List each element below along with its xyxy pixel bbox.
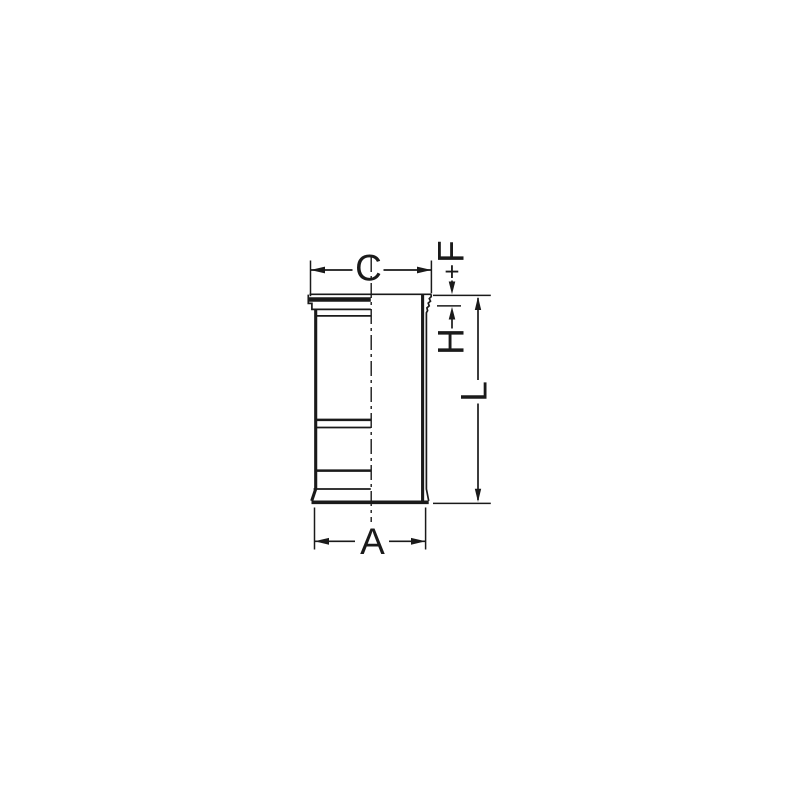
dim-h-label: H [430, 328, 471, 355]
dimension-l: L [433, 297, 494, 504]
liner-left-edge [312, 309, 316, 501]
dim-c-label: C [355, 248, 382, 289]
dim-c-arrow-right-icon [417, 267, 431, 274]
dim-l-arrow-down-icon [475, 489, 481, 502]
drawing-canvas: C F + H L [0, 0, 800, 800]
dimension-h: H [430, 306, 471, 355]
dim-a-label: A [360, 521, 385, 562]
dim-a-arrow-right-icon [411, 538, 426, 545]
dim-l-arrow-up-icon [475, 297, 481, 310]
liner-right-edge-serrated [426, 294, 431, 501]
liner-collar-left-step [308, 295, 371, 310]
liner-outline [308, 294, 431, 502]
dim-f-arrow-down-icon [449, 282, 456, 295]
dim-c-arrow-left-icon [311, 267, 326, 274]
dimension-f: F + [431, 240, 491, 295]
dim-a-arrow-left-icon [315, 538, 330, 545]
dimension-a: A [315, 508, 426, 563]
dim-l-label: L [453, 381, 494, 402]
cylinder-liner-technical-drawing: C F + H L [0, 0, 800, 800]
